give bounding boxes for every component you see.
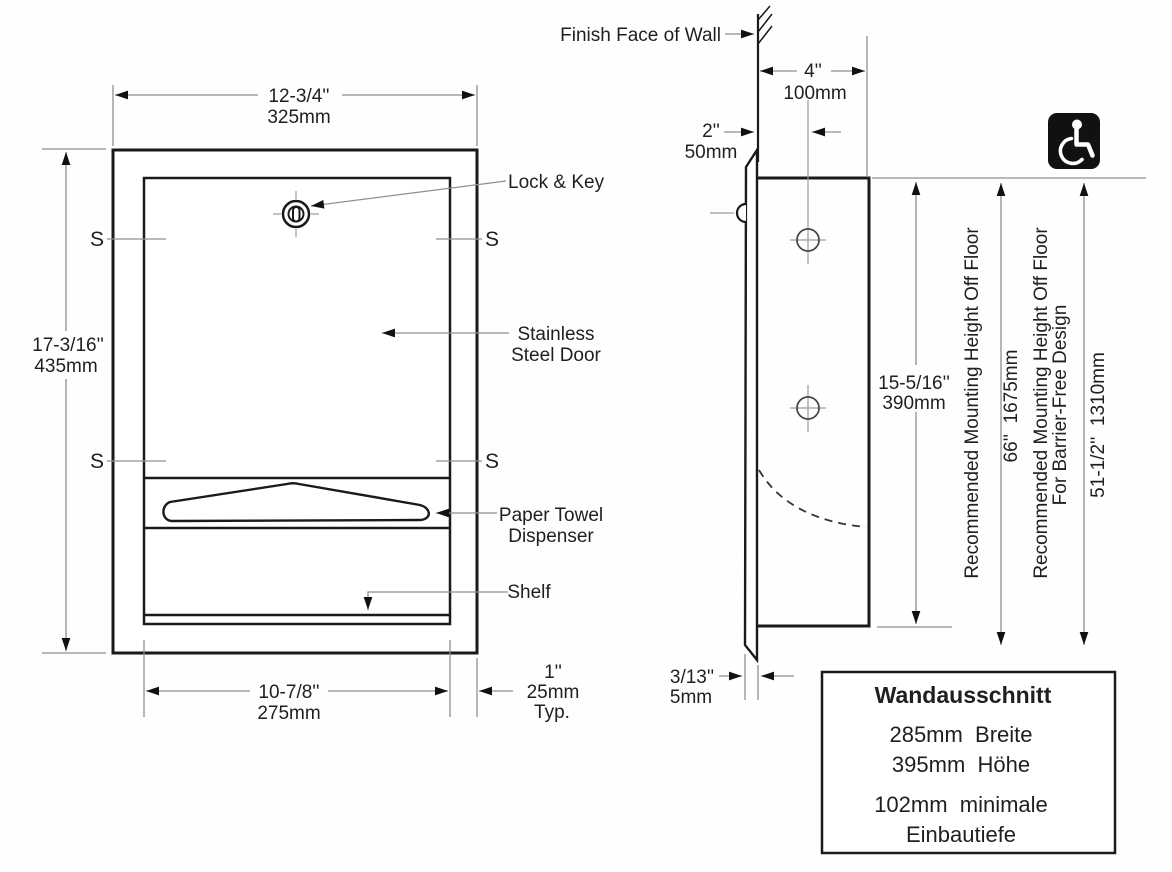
front-left-dimension: 17-3/16'' 435mm — [32, 149, 106, 653]
front-view: S S S S 12-3/4'' 325mm 17-3/16'' 435mm — [32, 85, 604, 724]
dim-height-inches: 15-5/16'' — [878, 373, 950, 394]
s-marker-top-right: S — [485, 228, 499, 251]
dim-left-inches: 17-3/16'' — [32, 335, 104, 356]
towel-path-dashed-curve — [759, 470, 866, 527]
mounting-holes — [790, 100, 826, 432]
dim-bottom-inches: 10-7/8'' — [258, 682, 319, 703]
dim-height-mm: 390mm — [882, 393, 945, 414]
s-marker-bottom-left: S — [90, 450, 104, 473]
dim-thickness-mm: 5mm — [670, 687, 712, 708]
mount-barrier-free-label-line2: For Barrier-Free Design — [1050, 305, 1071, 506]
dim-offset-inches: 2'' — [702, 121, 720, 142]
accessibility-icon — [1048, 113, 1100, 169]
dim-top-inches: 12-3/4'' — [268, 86, 329, 107]
dispenser-drawing-svg: S S S S 12-3/4'' 325mm 17-3/16'' 435mm — [0, 0, 1172, 872]
side-view: Finish Face of Wall 4'' 100mm — [560, 6, 1146, 708]
label-door-line2: Steel Door — [511, 345, 601, 366]
dim-offset-mm: 50mm — [685, 142, 738, 163]
dim-depth-mm: 100mm — [783, 83, 846, 104]
dim-thickness-inches: 3/13'' — [670, 667, 714, 688]
front-top-dimension: 12-3/4'' 325mm — [113, 85, 477, 146]
dim-left-mm: 435mm — [34, 356, 97, 377]
flange-profile — [745, 150, 757, 660]
label-dispenser-line1: Paper Towel — [499, 505, 603, 526]
note-box-depth-line1: 102mm minimale — [874, 792, 1048, 817]
recessed-box-profile — [757, 178, 869, 626]
mount-standard-label: Recommended Mounting Height Off Floor — [962, 227, 983, 579]
lock-outer-circle — [283, 201, 309, 227]
s-marker-top-left: S — [90, 228, 104, 251]
note-box-width: 285mm Breite — [889, 722, 1032, 747]
wall-cutout-note-box: Wandausschnitt 285mm Breite 395mm Höhe 1… — [822, 672, 1115, 853]
technical-drawing-page: S S S S 12-3/4'' 325mm 17-3/16'' 435mm — [0, 0, 1172, 872]
lock-protrusion — [737, 204, 746, 222]
mount-barrier-free-label-line1: Recommended Mounting Height Off Floor — [1031, 227, 1052, 579]
note-box-height: 395mm Höhe — [892, 752, 1030, 777]
dim-depth-inches: 4'' — [804, 61, 822, 82]
hole-offset-dimension: 2'' 50mm — [685, 121, 841, 163]
label-dispenser-line2: Dispenser — [508, 526, 594, 547]
dim-trim-mm: 25mm — [527, 682, 580, 703]
flange-thickness-dimension: 3/13'' 5mm — [670, 654, 794, 708]
note-box-title: Wandausschnitt — [875, 682, 1052, 708]
wall-face: Finish Face of Wall — [560, 6, 772, 162]
label-shelf: Shelf — [507, 582, 551, 603]
label-finish-face-of-wall: Finish Face of Wall — [560, 25, 721, 46]
dim-trim-inches: 1'' — [544, 662, 562, 683]
mount-standard-value: 66'' 1675mm — [1001, 350, 1022, 463]
box-height-dimension: 15-5/16'' 390mm — [877, 182, 952, 627]
note-box-depth-line2: Einbautiefe — [906, 822, 1016, 847]
dim-bottom-mm: 275mm — [257, 703, 320, 724]
label-door-line1: Stainless — [517, 324, 594, 345]
depth-dimension: 4'' 100mm — [760, 36, 867, 176]
mount-barrier-free-value: 51-1/2'' 1310mm — [1088, 352, 1109, 498]
dim-trim-typ: Typ. — [534, 702, 570, 723]
label-lock-key: Lock & Key — [508, 172, 605, 193]
s-marker-bottom-right: S — [485, 450, 499, 473]
dim-top-mm: 325mm — [267, 107, 330, 128]
